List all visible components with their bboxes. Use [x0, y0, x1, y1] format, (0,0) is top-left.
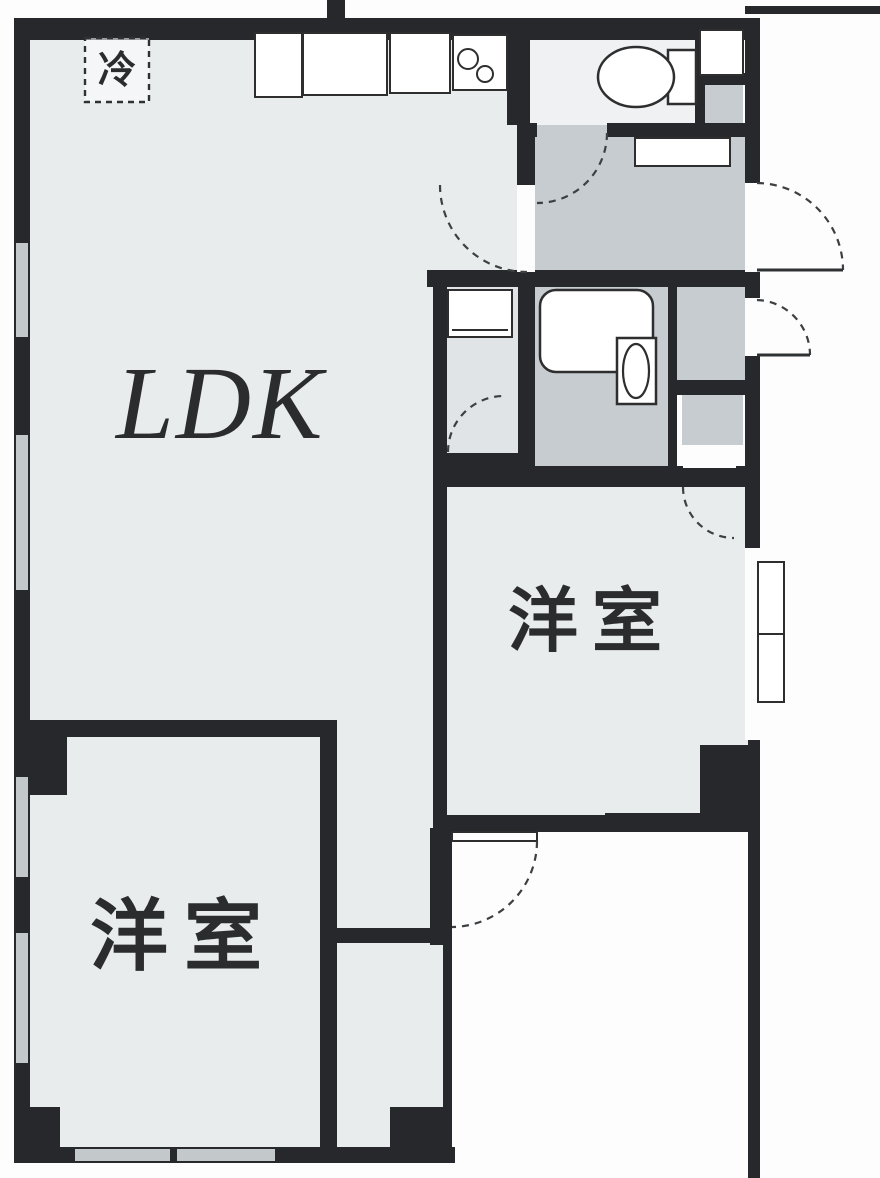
entrance-door-opening	[745, 183, 760, 272]
bathroom-right-wall	[668, 278, 677, 480]
terrace-door-leaf	[452, 832, 537, 841]
bedroom-bottom-corner-pillar	[30, 720, 67, 795]
washing-machine-pan	[448, 290, 512, 337]
toilet-icon	[598, 47, 696, 107]
entrance-door-arc	[757, 183, 843, 270]
bedroom-right-corner-pillar	[700, 745, 748, 832]
shoe-cabinet	[635, 138, 730, 166]
ldk-hall-wall	[517, 125, 535, 185]
closet-box-floor	[682, 395, 743, 445]
floor-plan: LDK 洋室 洋室 冷	[0, 0, 880, 1178]
bedroom-bottom-window-3	[75, 1149, 170, 1161]
top-right-party-wall	[745, 6, 880, 14]
bedroom-right-room-label: 洋室	[482, 588, 702, 658]
utility-box-floor	[705, 85, 743, 125]
toilet-side-cabinet	[700, 30, 743, 75]
storage-bottom-wall	[677, 380, 760, 395]
ldk-window-2	[16, 435, 28, 590]
bedroom-right-bottom-wall	[605, 813, 700, 832]
top-wall-stub	[327, 0, 345, 20]
ldk-floor-strip	[337, 720, 433, 943]
terrace-door-arc	[452, 841, 537, 927]
bedroom-bottom-window-1	[16, 777, 28, 877]
storage-room-floor	[677, 287, 745, 380]
ldk-window-1	[16, 243, 28, 337]
ldk-door-opening	[517, 185, 535, 272]
washroom-bottom-wall	[433, 453, 518, 468]
kitchen-toilet-wall	[507, 28, 530, 125]
bedroom-right-window-frame	[758, 562, 784, 702]
ldk-right-wall	[433, 278, 447, 832]
toilet-bowl	[598, 47, 674, 107]
right-exterior-wall-lower	[748, 740, 760, 1178]
bedroom-right-top-wall	[433, 466, 760, 487]
hallway-bottom-wall	[427, 270, 745, 287]
closet-door-opening	[683, 445, 736, 468]
bedroom-bottom-window-4	[177, 1149, 275, 1161]
bedroom-bottom-room-label: 洋室	[64, 898, 304, 976]
bottom-left-pillar	[14, 1107, 60, 1163]
ldk-room-label: LDK	[116, 352, 324, 456]
washroom-bathroom-wall	[518, 278, 535, 480]
bottom-right-pillar	[390, 1107, 443, 1163]
floor-plan-drawing	[0, 0, 880, 1178]
storage-door-arc	[757, 300, 810, 355]
storage-door-opening	[745, 298, 760, 356]
washbasin-icon	[617, 338, 656, 404]
bedroom-bottom-window-2	[16, 933, 28, 1063]
kitchen-sink-unit	[453, 35, 507, 90]
closet-strip-right-wall	[443, 943, 452, 1147]
kitchen-counter	[255, 33, 507, 97]
refrigerator-label: 冷	[85, 40, 149, 102]
bedroom-bottom-top-wall	[30, 720, 337, 737]
toilet-bottom-wall	[607, 123, 745, 137]
